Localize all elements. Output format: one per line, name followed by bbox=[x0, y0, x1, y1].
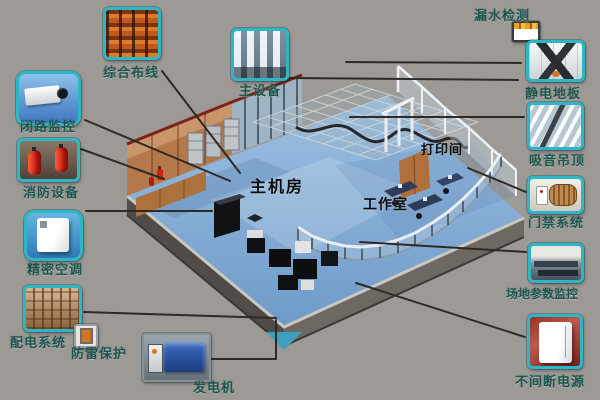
ac-label: 精密空调 bbox=[15, 259, 95, 278]
acoustic-ceiling-icon bbox=[527, 102, 584, 150]
print-room-label: 打印间 bbox=[421, 139, 463, 158]
line-main-equipment bbox=[290, 78, 518, 80]
workspace-label: 工作室 bbox=[363, 194, 408, 214]
main-room-label: 主机房 bbox=[250, 173, 304, 197]
generator-label: 发电机 bbox=[174, 377, 254, 396]
fire-extinguisher-icon bbox=[17, 138, 80, 182]
cctv-label: 闭路监控 bbox=[8, 116, 88, 135]
site-monitor-label: 场地参数监控 bbox=[494, 285, 590, 302]
main-equipment-label: 主设备 bbox=[220, 80, 300, 99]
ups-icon bbox=[527, 314, 583, 369]
site-monitoring-icon bbox=[528, 243, 584, 283]
line-floor bbox=[346, 62, 521, 63]
power-cabinet-icon bbox=[23, 285, 82, 332]
antistatic-floor-icon bbox=[526, 40, 585, 82]
air-conditioner-icon bbox=[24, 210, 83, 261]
fire-label: 消防设备 bbox=[11, 182, 91, 201]
generator-icon bbox=[142, 333, 211, 382]
access-label: 门禁系统 bbox=[516, 212, 596, 231]
main-equipment-icon bbox=[231, 28, 289, 81]
floor-label: 静电地板 bbox=[513, 83, 593, 102]
lightning-label: 防雷保护 bbox=[59, 343, 139, 362]
leak-detector-icon bbox=[512, 21, 540, 42]
cabling-label: 综合布线 bbox=[91, 62, 171, 81]
machine-room-diagram: 主机房 工作室 打印间 综合布线 闭路监控 消防设备 精密空调 配电系统 防雷保… bbox=[0, 0, 600, 400]
leak-label: 漏水检测 bbox=[462, 5, 542, 24]
cabling-image-icon bbox=[103, 7, 161, 60]
ceiling-label: 吸音吊顶 bbox=[517, 150, 597, 169]
access-control-icon bbox=[527, 176, 584, 214]
ups-label: 不间断电源 bbox=[510, 371, 590, 390]
